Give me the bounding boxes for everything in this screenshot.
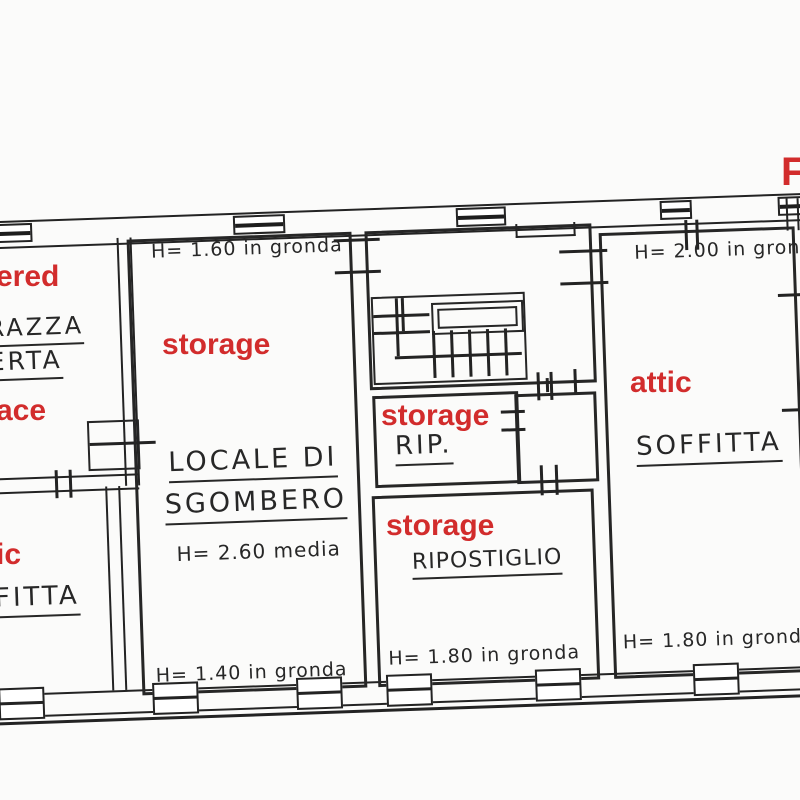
stair-walk-line — [395, 352, 522, 359]
chimney-box — [456, 206, 507, 227]
wall-tick — [782, 408, 800, 412]
stairs — [371, 292, 528, 385]
label-storage-rip: storage — [381, 399, 489, 433]
room-name-sgombero: SGOMBERO — [164, 483, 347, 525]
window-marker — [386, 673, 433, 707]
wall-stub — [546, 378, 549, 392]
room-name-soffitta: SOFFITTA — [636, 427, 783, 467]
room-name-soffitta-fragment: FITTA — [0, 581, 80, 619]
label-corner-f-fragment: F — [781, 150, 800, 195]
label-storage-ripostiglio: storage — [386, 509, 494, 543]
stair-winder-line — [401, 298, 405, 331]
room-name-coperta-fragment: ERTA — [0, 345, 63, 382]
chimney-box — [0, 223, 33, 244]
room-name-ripostiglio: RIPOSTIGLIO — [412, 545, 563, 580]
room-name-terrazza-fragment: RAZZA — [0, 311, 85, 347]
label-attic: attic — [630, 366, 692, 400]
wall-tick — [55, 470, 58, 498]
room-name-locale-di: LOCALE DI — [168, 441, 338, 483]
label-storage-main: storage — [162, 328, 270, 362]
stair-left-line — [395, 298, 400, 356]
chimney-box — [233, 214, 286, 235]
scanned-floor-plan-page: { "colors": { "annotation_red": "#d22c2c… — [0, 0, 800, 800]
chimney-box — [660, 200, 693, 220]
wall-tick — [69, 470, 72, 498]
attic-left-room-wall — [105, 486, 127, 690]
label-terrace-fragment: ace — [0, 394, 46, 428]
floor-plan-drawing: H= 1.60 in gronda RAZZA ERTA LOCALE DI S… — [0, 197, 800, 786]
window-marker — [535, 668, 582, 702]
label-attic-left-fragment: ic — [0, 538, 21, 572]
label-covered-fragment: ered — [0, 260, 59, 294]
stair-landing — [431, 300, 524, 335]
window-marker — [693, 663, 740, 697]
room-name-rip: RIP. — [394, 429, 453, 466]
window-marker — [0, 687, 45, 721]
